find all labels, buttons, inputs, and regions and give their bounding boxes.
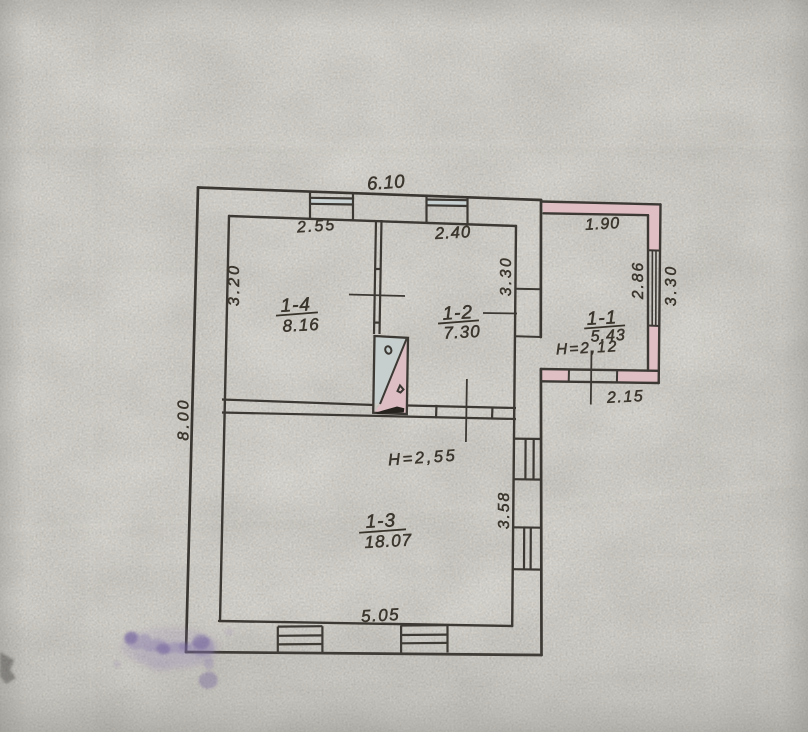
svg-text:3.20: 3.20 <box>226 263 243 306</box>
svg-text:3.30: 3.30 <box>663 264 680 306</box>
svg-text:8.16: 8.16 <box>282 315 320 336</box>
svg-text:2.40: 2.40 <box>434 223 472 243</box>
svg-text:1.90: 1.90 <box>585 215 621 234</box>
svg-text:6.10: 6.10 <box>366 170 406 194</box>
svg-text:8.00: 8.00 <box>176 397 193 440</box>
svg-text:18.07: 18.07 <box>364 531 412 552</box>
svg-text:2.86: 2.86 <box>630 261 647 300</box>
svg-text:7.30: 7.30 <box>443 322 481 343</box>
svg-text:H=2,12: H=2,12 <box>556 338 619 358</box>
svg-text:2.55: 2.55 <box>295 217 336 237</box>
svg-text:3.30: 3.30 <box>498 256 515 296</box>
svg-text:3.58: 3.58 <box>496 491 513 529</box>
svg-text:2.15: 2.15 <box>606 388 645 407</box>
